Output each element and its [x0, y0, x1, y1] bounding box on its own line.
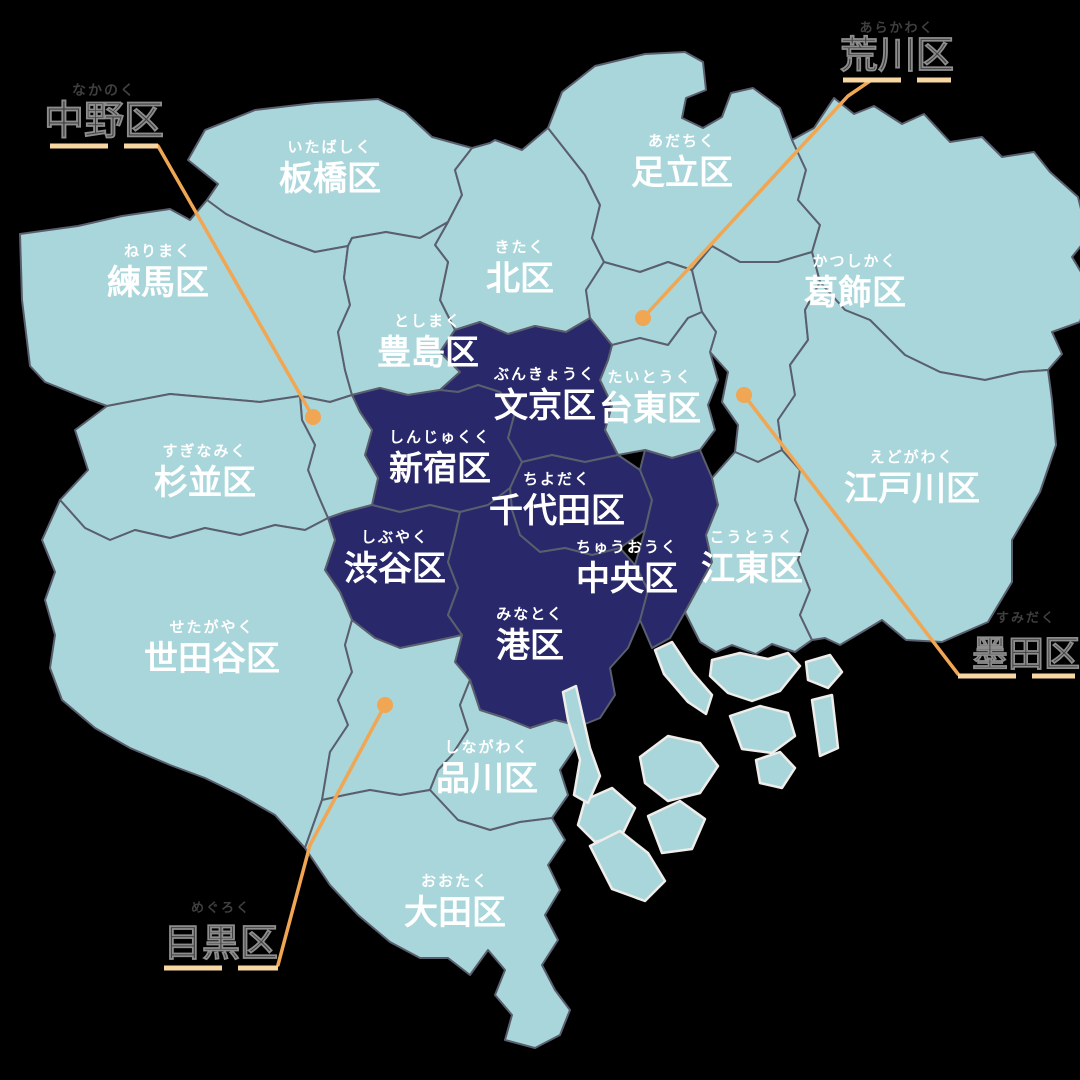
ward-label-minato: 港区 — [496, 626, 564, 666]
ward-label-shinagawa: 品川区 — [436, 759, 538, 799]
callout-meguro-furigana: めぐろく — [191, 901, 251, 916]
ward-label-shibuya: 渋谷区 — [344, 549, 446, 589]
bay-island-3 — [640, 736, 718, 801]
ward-label-chuo: 中央区 — [576, 559, 678, 599]
ward-furigana-edogawa: えどがわく — [869, 448, 954, 466]
ward-label-setagaya: 世田谷区 — [144, 639, 280, 679]
ward-furigana-nerima: ねりまく — [124, 242, 192, 260]
ward-furigana-kita: きたく — [494, 238, 545, 256]
ward-furigana-adachi: あだちく — [648, 132, 716, 150]
ward-furigana-shinjuku: しんじゅくく — [389, 428, 491, 446]
ward-label-edogawa: 江戸川区 — [844, 469, 980, 509]
ward-label-itabashi: 板橋区 — [279, 159, 381, 199]
ward-label-taito: 台東区 — [599, 389, 701, 429]
callout-arakawa-dot — [635, 310, 651, 326]
ward-label-ota: 大田区 — [404, 893, 506, 933]
ward-furigana-shibuya: しぶやく — [361, 528, 429, 546]
bay-island-9 — [590, 831, 665, 901]
callout-meguro-dot — [377, 697, 393, 713]
ward-furigana-toshima: としまく — [394, 312, 462, 330]
callout-nakano-furigana: なかのく — [72, 83, 136, 99]
ward-furigana-chiyoda: ちよだく — [523, 470, 591, 488]
ward-furigana-minato: みなとく — [496, 605, 564, 623]
bay-island-11 — [756, 752, 795, 788]
bay-island-7 — [648, 801, 705, 853]
callout-sumida-label: 墨田区 — [972, 634, 1080, 675]
ward-furigana-ota: おおたく — [421, 872, 489, 890]
ward-label-bunkyo: 文京区 — [494, 386, 596, 426]
ward-furigana-setagaya: せたがやく — [169, 618, 254, 636]
tokyo-23-wards-map: いたばしく板橋区ねりまく練馬区きたく北区あだちく足立区かつしかく葛飾区としまく豊… — [0, 0, 1080, 1080]
ward-label-katsushika: 葛飾区 — [804, 273, 906, 313]
ward-furigana-koto: こうとうく — [709, 528, 794, 546]
callout-arakawa-label: 荒川区 — [840, 33, 954, 77]
ward-label-nerima: 練馬区 — [107, 263, 209, 303]
ward-label-chiyoda: 千代田区 — [489, 491, 625, 531]
ward-label-adachi: 足立区 — [631, 153, 733, 193]
ward-label-suginami: 杉並区 — [154, 463, 256, 503]
bay-island-4 — [730, 706, 795, 753]
ward-furigana-bunkyo: ぶんきょうく — [493, 365, 596, 383]
ward-label-koto: 江東区 — [701, 549, 803, 589]
callout-sumida-dot — [736, 387, 752, 403]
bay-island-5 — [806, 655, 842, 688]
callout-meguro-label: 目黒区 — [164, 921, 278, 965]
bay-island-1 — [655, 642, 712, 714]
ward-furigana-suginami: すぎなみく — [162, 442, 247, 460]
ward-furigana-shinagawa: しながわく — [444, 738, 529, 756]
callout-sumida-furigana: すみだく — [996, 611, 1056, 626]
bay-island-2 — [710, 653, 800, 701]
bay-island-10 — [812, 695, 838, 756]
callout-nakano-dot — [305, 409, 321, 425]
ward-furigana-chuo: ちゅうおうく — [576, 538, 678, 556]
callout-nakano-label: 中野区 — [44, 98, 164, 144]
ward-label-shinjuku: 新宿区 — [389, 449, 491, 489]
ward-label-kita: 北区 — [486, 259, 554, 299]
tokyo-ward-map-stage: いたばしく板橋区ねりまく練馬区きたく北区あだちく足立区かつしかく葛飾区としまく豊… — [0, 0, 1080, 1080]
ward-label-toshima: 豊島区 — [377, 333, 479, 373]
ward-furigana-itabashi: いたばしく — [287, 138, 372, 156]
ward-furigana-taito: たいとうく — [607, 368, 692, 386]
ward-furigana-katsushika: かつしかく — [812, 252, 897, 270]
